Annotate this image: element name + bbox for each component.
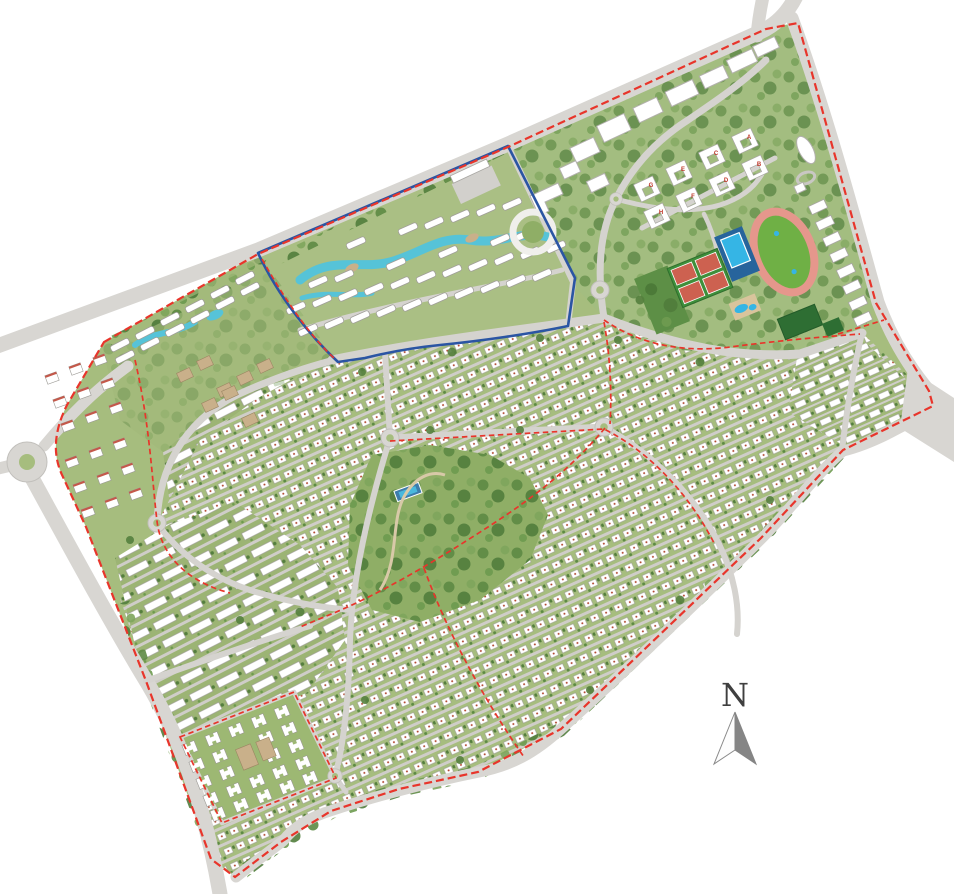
- unit-label-h: H: [659, 210, 663, 216]
- unit-label-e: E: [681, 167, 685, 173]
- unit-label-c: C: [714, 151, 719, 157]
- interchange-island: [19, 454, 35, 470]
- roundabout: [610, 193, 623, 206]
- unit-label-d: D: [724, 178, 729, 184]
- unit-label-f: F: [691, 194, 695, 200]
- master-plan-page: A B C D E F G H: [0, 0, 954, 894]
- compass: N: [714, 676, 756, 764]
- roundabout: [381, 429, 399, 447]
- roundabout: [591, 281, 609, 299]
- master-plan-map: A B C D E F G H: [0, 0, 954, 894]
- unit-label-b: B: [757, 162, 762, 168]
- unit-label-a: A: [747, 135, 752, 141]
- north-label: N: [721, 676, 749, 714]
- north-arrow-right: [735, 712, 756, 764]
- unit-label-g: G: [649, 183, 654, 189]
- north-arrow-left: [714, 712, 735, 764]
